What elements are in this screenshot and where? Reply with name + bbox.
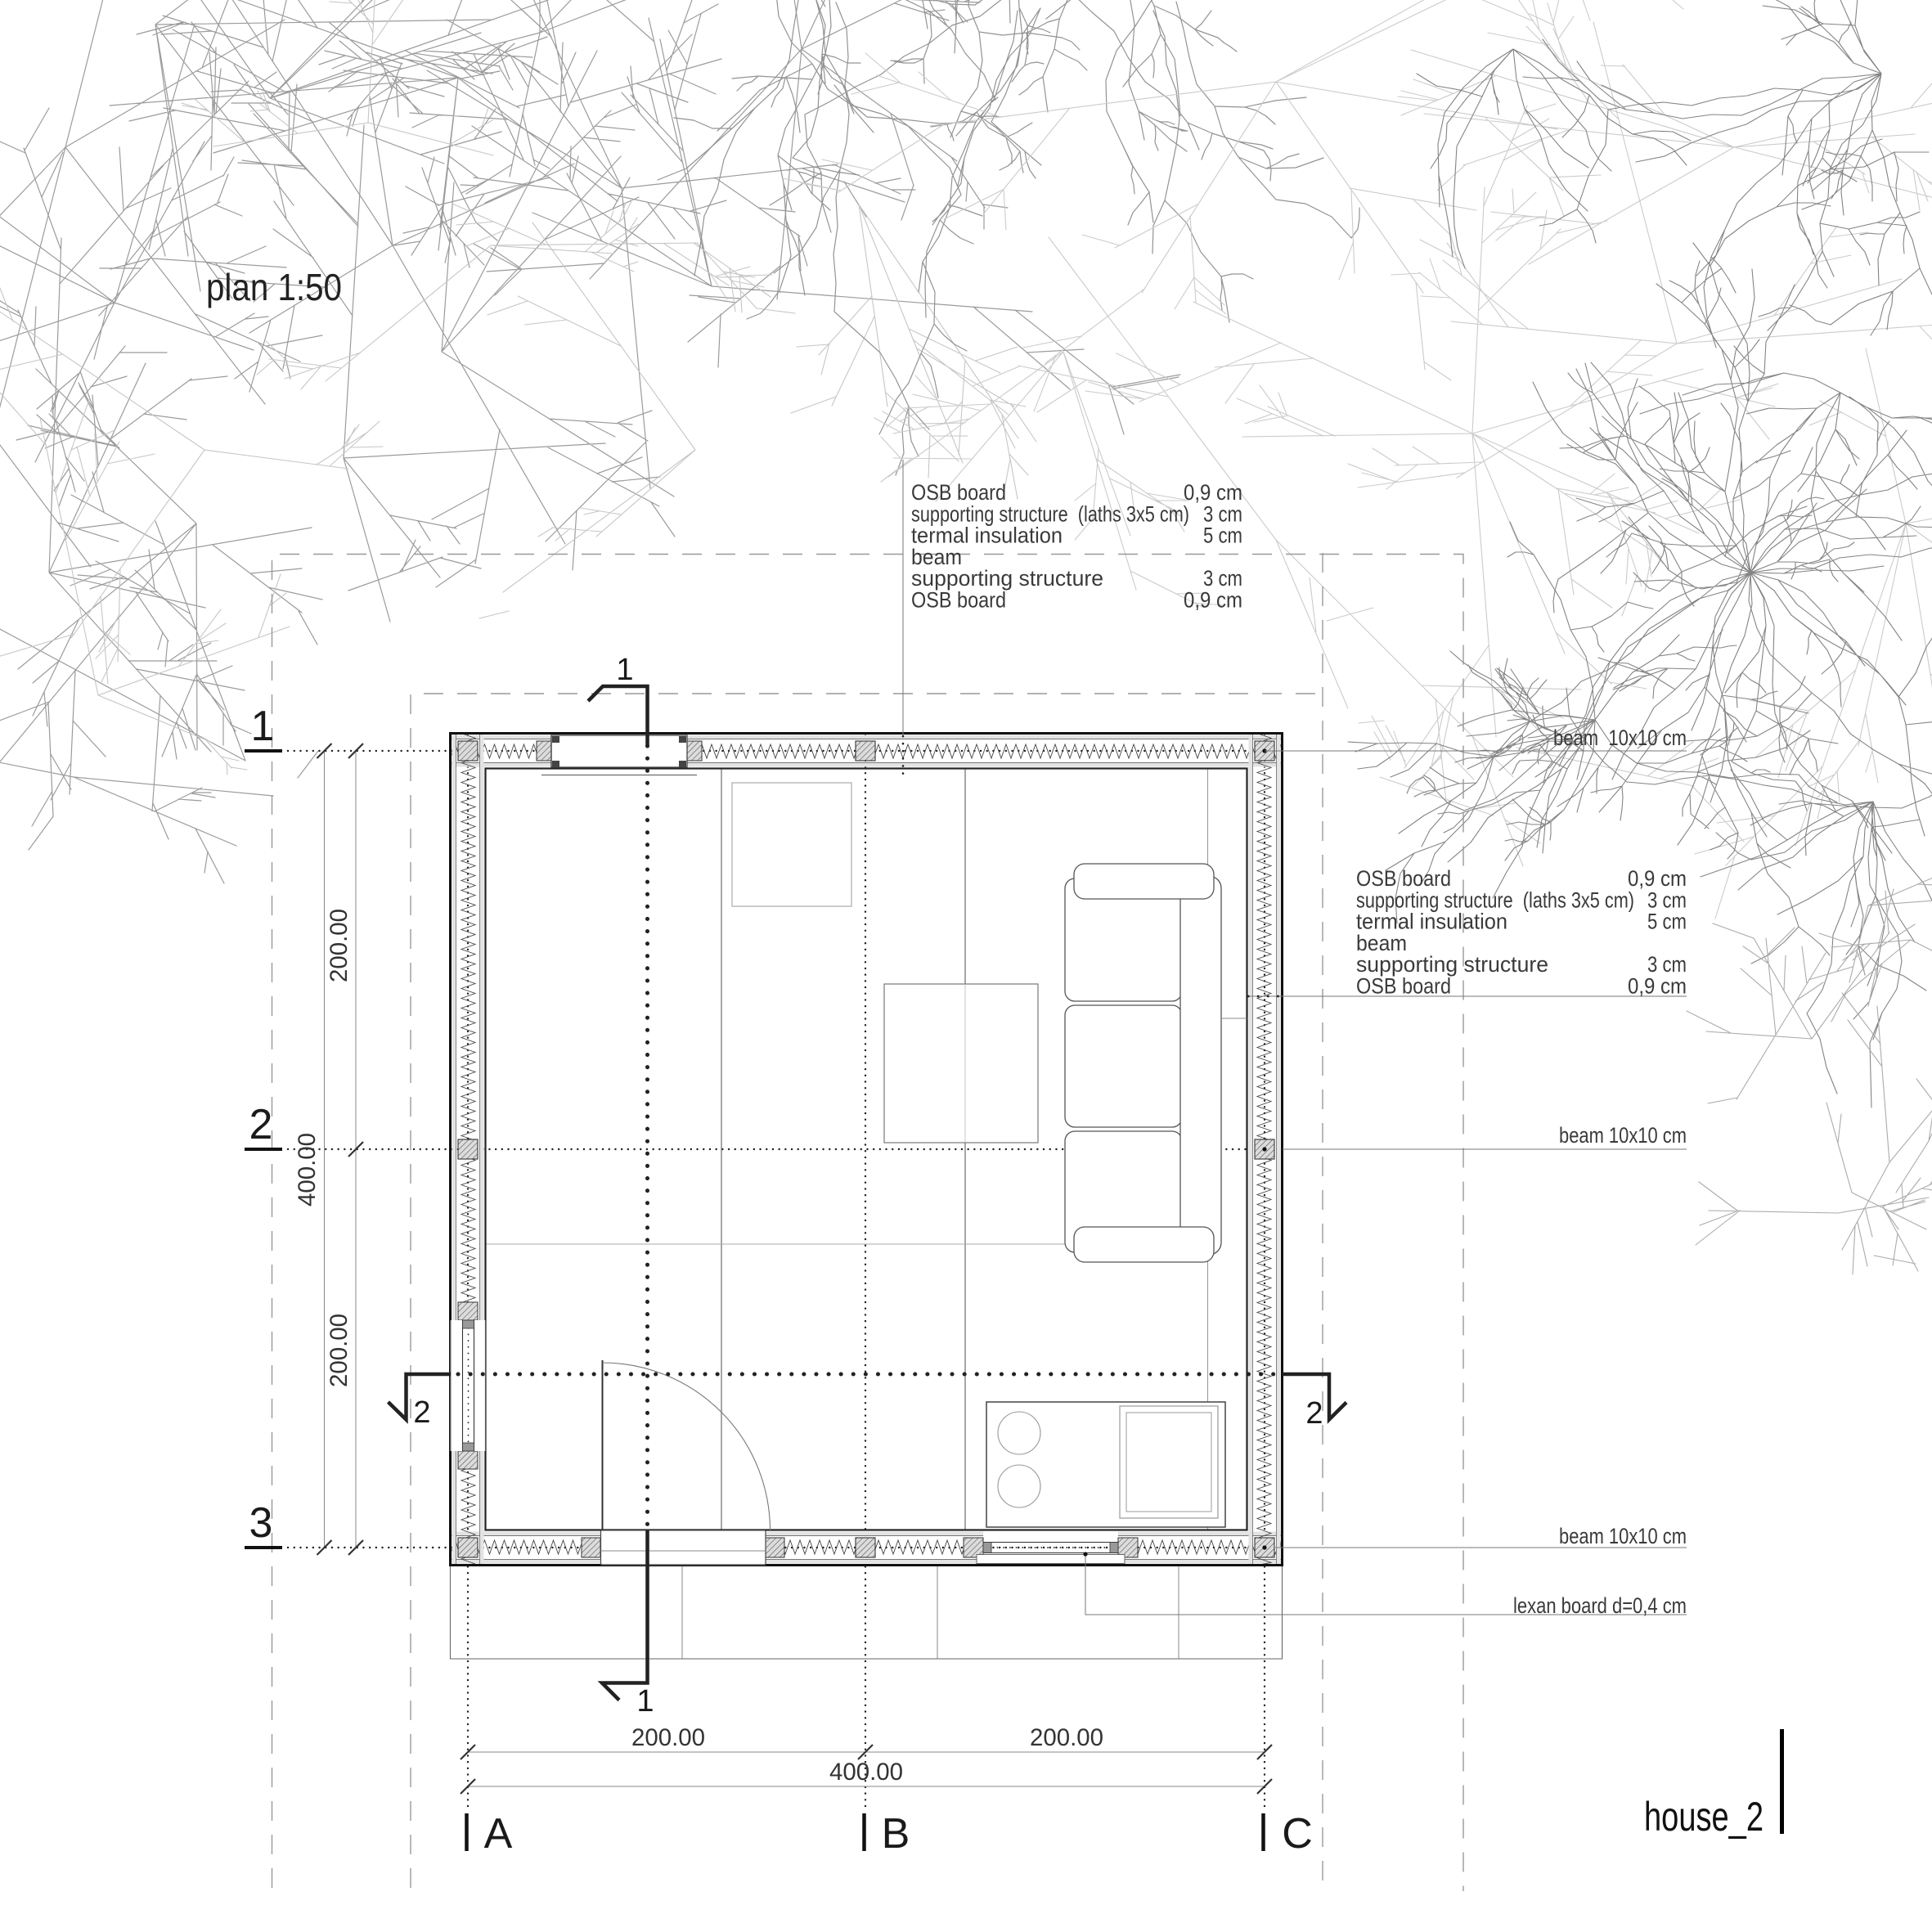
- svg-text:C: C: [1282, 1810, 1313, 1858]
- svg-text:A: A: [484, 1810, 513, 1858]
- svg-text:5 cm: 5 cm: [1647, 910, 1687, 934]
- svg-text:400.00: 400.00: [294, 1133, 321, 1206]
- svg-text:beam 10x10 cm: beam 10x10 cm: [1553, 726, 1687, 750]
- svg-text:1: 1: [251, 703, 275, 750]
- svg-text:400.00: 400.00: [829, 1759, 903, 1786]
- svg-text:200.00: 200.00: [326, 1314, 353, 1387]
- svg-text:5 cm: 5 cm: [1203, 523, 1242, 548]
- svg-text:2: 2: [249, 1101, 273, 1148]
- svg-text:1: 1: [616, 653, 633, 687]
- svg-text:2: 2: [1305, 1396, 1323, 1431]
- svg-text:OSB board: OSB board: [1356, 974, 1451, 999]
- svg-text:200.00: 200.00: [326, 909, 353, 982]
- svg-text:1: 1: [636, 1684, 654, 1719]
- svg-text:200.00: 200.00: [1030, 1724, 1103, 1751]
- svg-text:house_2: house_2: [1644, 1794, 1764, 1840]
- svg-text:0,9 cm: 0,9 cm: [1628, 974, 1687, 999]
- svg-text:plan 1:50: plan 1:50: [206, 266, 342, 308]
- svg-text:0,9 cm: 0,9 cm: [1184, 588, 1242, 613]
- svg-text:3: 3: [249, 1499, 273, 1547]
- svg-text:200.00: 200.00: [631, 1724, 705, 1751]
- svg-text:beam 10x10 cm: beam 10x10 cm: [1559, 1123, 1687, 1148]
- svg-text:beam 10x10 cm: beam 10x10 cm: [1559, 1524, 1687, 1548]
- svg-text:lexan board d=0,4 cm: lexan board d=0,4 cm: [1513, 1593, 1687, 1618]
- svg-text:B: B: [882, 1810, 910, 1858]
- svg-text:2: 2: [413, 1395, 430, 1430]
- svg-text:OSB board: OSB board: [911, 588, 1006, 613]
